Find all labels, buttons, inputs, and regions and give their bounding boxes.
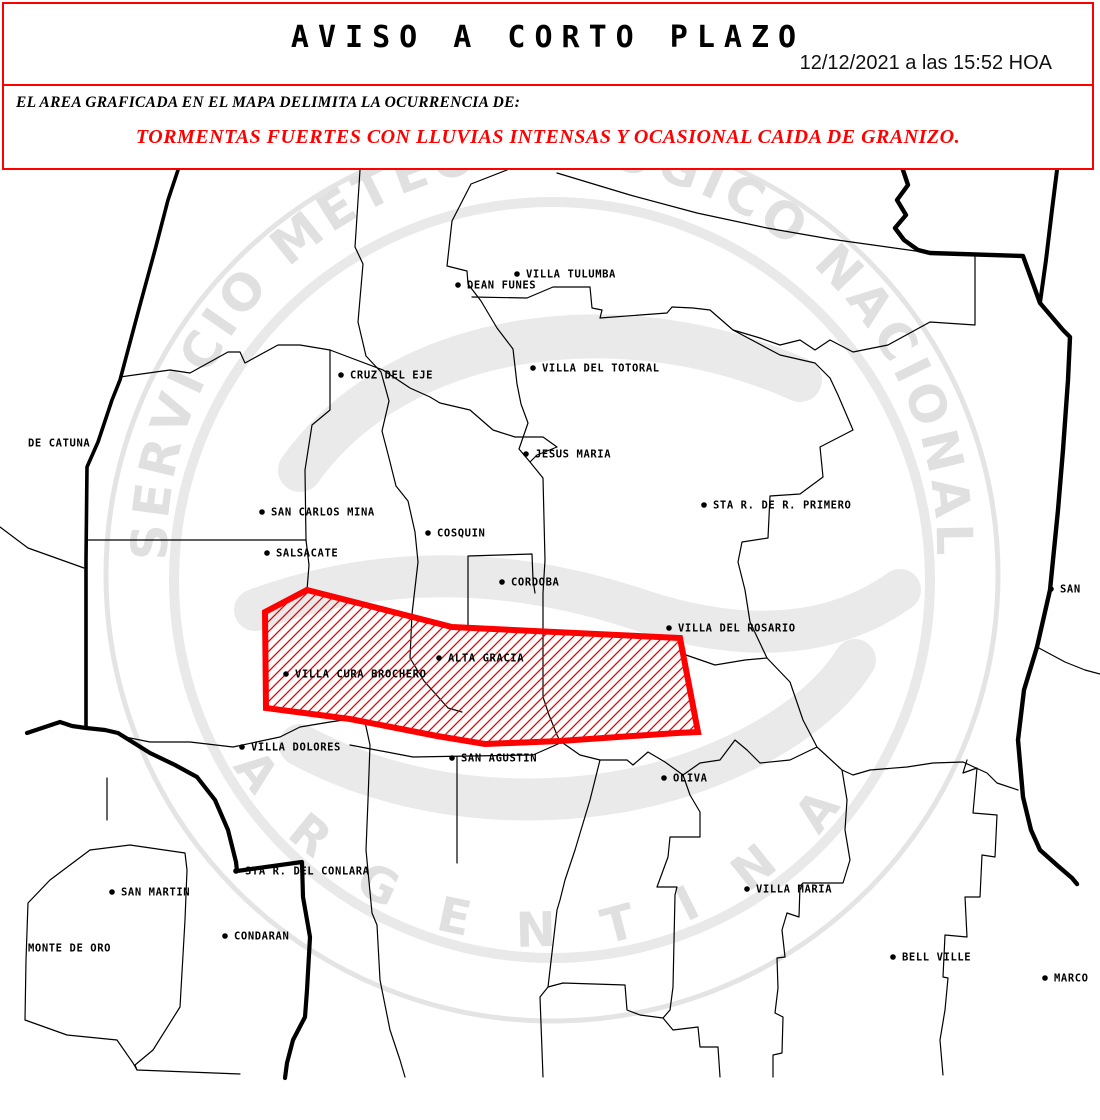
city-dot bbox=[449, 755, 455, 761]
city-dot bbox=[233, 868, 239, 874]
city-marker: MONTE DE ORO bbox=[28, 943, 111, 955]
city-marker: SAN CARLOS MINA bbox=[259, 507, 375, 519]
city-marker: STA R. DEL CONLARA bbox=[233, 866, 369, 878]
city-dot bbox=[283, 671, 289, 677]
city-dot bbox=[661, 775, 667, 781]
city-dot bbox=[1048, 586, 1054, 592]
city-label: OLIVA bbox=[673, 773, 708, 785]
city-label: CORDOBA bbox=[511, 577, 560, 589]
watermark-logo: SERVICIO METEOROLÓGICO NACIONAL ARGENTIN… bbox=[106, 170, 998, 1021]
city-marker: COSQUIN bbox=[425, 528, 485, 540]
city-label: MARCO bbox=[1054, 973, 1089, 985]
city-label: DEAN FUNES bbox=[467, 280, 536, 292]
city-dot bbox=[701, 502, 707, 508]
city-label: VILLA DOLORES bbox=[251, 742, 341, 754]
page-title: AVISO A CORTO PLAZO bbox=[4, 4, 1092, 55]
city-label: MONTE DE ORO bbox=[28, 943, 111, 955]
city-label: VILLA MARIA bbox=[756, 884, 832, 896]
city-dot bbox=[425, 530, 431, 536]
city-label: CRUZ DEL EJE bbox=[350, 370, 433, 382]
map: SERVICIO METEOROLÓGICO NACIONAL ARGENTIN… bbox=[0, 170, 1100, 1120]
city-label: BELL VILLE bbox=[902, 952, 971, 964]
city-dot bbox=[109, 889, 115, 895]
city-label: VILLA CURA BROCHERO bbox=[295, 669, 427, 681]
city-dot bbox=[744, 886, 750, 892]
city-marker: SAN AGUSTIN bbox=[449, 753, 537, 765]
city-marker: SALSACATE bbox=[264, 548, 338, 560]
city-marker: STA R. DE R. PRIMERO bbox=[701, 500, 851, 512]
city-label: STA R. DE R. PRIMERO bbox=[713, 500, 851, 512]
city-marker: VILLA MARIA bbox=[744, 884, 832, 896]
city-marker: DE CATUNA bbox=[28, 438, 90, 450]
city-dot bbox=[499, 579, 505, 585]
city-marker: VILLA CURA BROCHERO bbox=[283, 669, 426, 681]
city-marker: BELL VILLE bbox=[890, 952, 971, 964]
city-label: VILLA TULUMBA bbox=[526, 269, 616, 281]
city-label: ALTA GRACIA bbox=[448, 653, 524, 665]
city-label: VILLA DEL ROSARIO bbox=[678, 623, 796, 635]
city-dot bbox=[259, 509, 265, 515]
issue-timestamp: 12/12/2021 a las 15:52 HOA bbox=[800, 52, 1052, 75]
warning-phenomena-text: TORMENTAS FUERTES CON LLUVIAS INTENSAS Y… bbox=[4, 126, 1092, 149]
city-label: STA R. DEL CONLARA bbox=[245, 866, 370, 878]
city-marker: MARCO bbox=[1042, 973, 1088, 985]
city-label: SAN MARTIN bbox=[121, 887, 190, 899]
city-label: VILLA DEL TOTORAL bbox=[542, 363, 660, 375]
city-label: COSQUIN bbox=[437, 528, 485, 540]
city-label: DE CATUNA bbox=[28, 438, 90, 450]
city-marker: VILLA DOLORES bbox=[239, 742, 341, 754]
city-dot bbox=[666, 625, 672, 631]
city-marker: JESUS MARIA bbox=[523, 449, 611, 461]
city-dot bbox=[530, 365, 536, 371]
city-dot bbox=[264, 550, 270, 556]
city-label: CONDARAN bbox=[234, 931, 289, 943]
city-marker: VILLA DEL ROSARIO bbox=[666, 623, 795, 635]
city-marker: CONDARAN bbox=[222, 931, 289, 943]
warning-bulletin: AVISO A CORTO PLAZO 12/12/2021 a las 15:… bbox=[0, 0, 1100, 1120]
notice-box: EL AREA GRAFICADA EN EL MAPA DELIMITA LA… bbox=[2, 84, 1094, 170]
city-dot bbox=[890, 954, 896, 960]
city-marker: SAN bbox=[1048, 584, 1081, 596]
city-label: SALSACATE bbox=[276, 548, 338, 560]
notice-intro-text: EL AREA GRAFICADA EN EL MAPA DELIMITA LA… bbox=[16, 94, 520, 112]
title-box: AVISO A CORTO PLAZO 12/12/2021 a las 15:… bbox=[2, 2, 1094, 84]
city-dot bbox=[514, 271, 520, 277]
city-marker: SAN MARTIN bbox=[109, 887, 190, 899]
city-label: JESUS MARIA bbox=[535, 449, 611, 461]
city-dot bbox=[222, 933, 228, 939]
city-marker: VILLA DEL TOTORAL bbox=[530, 363, 659, 375]
city-marker: ALTA GRACIA bbox=[436, 653, 524, 665]
city-dot bbox=[523, 451, 529, 457]
city-label: SAN bbox=[1060, 584, 1081, 596]
city-label: SAN AGUSTIN bbox=[461, 753, 537, 765]
city-dot bbox=[1042, 975, 1048, 981]
city-dot bbox=[338, 372, 344, 378]
city-marker: DEAN FUNES bbox=[455, 280, 536, 292]
city-label: SAN CARLOS MINA bbox=[271, 507, 375, 519]
city-dot bbox=[239, 744, 245, 750]
city-dot bbox=[436, 655, 442, 661]
city-dot bbox=[455, 282, 461, 288]
city-marker: CRUZ DEL EJE bbox=[338, 370, 433, 382]
